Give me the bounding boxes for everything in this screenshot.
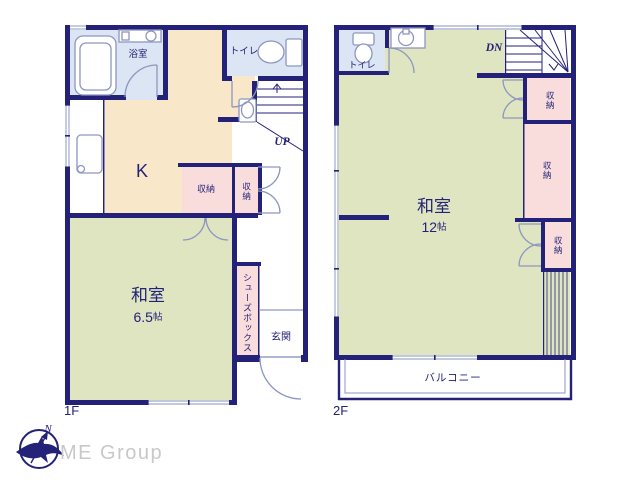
label-storage-c-2f: 収納	[550, 229, 565, 261]
label-storage-a-2f: 収納	[542, 84, 557, 116]
label-toilet-2f: トイレ	[339, 59, 385, 72]
label-balcony: バルコニー	[393, 371, 513, 387]
label-floor-2f: 2F	[333, 404, 363, 419]
room-kitchen-top	[168, 28, 222, 100]
label-stairs-down: DN	[480, 41, 508, 55]
label-tatami-size-2f: 12帖	[394, 219, 474, 237]
floor-plan-1f	[65, 25, 308, 405]
label-floor-1f: 1F	[64, 404, 94, 419]
floor-plan-page: 浴室 トイレ K 収納 収納 和室 6.5帖 シューズボックス 玄関 UP 1F…	[0, 0, 640, 480]
compass-icon	[16, 430, 64, 468]
company-logo-text: ME Group	[60, 441, 190, 465]
label-storage-b-1f: 収納	[239, 175, 253, 207]
toilet-tank-icon-2f	[353, 33, 374, 45]
label-entrance: 玄関	[264, 330, 298, 344]
room-tatami-1f	[70, 213, 236, 403]
label-tatami-2f: 和室	[394, 196, 474, 218]
label-toilet-1f: トイレ	[222, 46, 266, 59]
floor-plan-drawing	[0, 0, 640, 480]
label-tatami-size-1f: 6.5帖	[108, 309, 188, 327]
entrance-door-arc	[260, 358, 301, 399]
label-stairs-up: UP	[268, 136, 296, 149]
label-storage-b-2f: 収納	[539, 153, 554, 187]
label-kitchen: K	[120, 158, 164, 186]
label-tatami-1f: 和室	[108, 285, 188, 307]
toilet-tank-icon-1f	[286, 39, 302, 66]
label-compass-north: N	[41, 423, 55, 435]
stairwell-2f	[505, 30, 570, 73]
label-bathroom: 浴室	[114, 48, 162, 62]
label-storage-a-1f: 収納	[182, 183, 230, 197]
label-shoes-box: シューズボックス	[238, 270, 254, 356]
